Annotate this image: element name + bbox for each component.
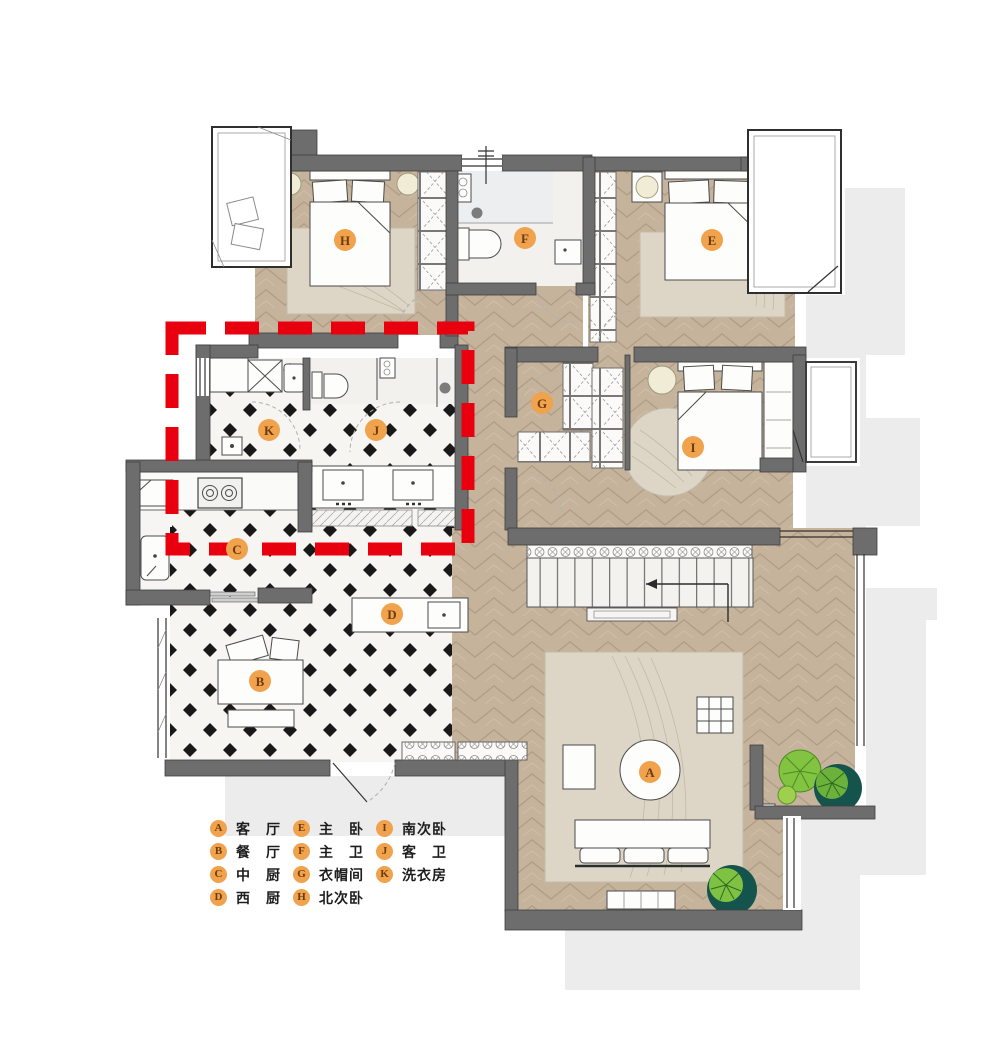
legend-badge: I [376, 820, 393, 837]
stairs-storage-strip [527, 545, 752, 558]
bed-i-pillow-1 [683, 365, 714, 391]
wall-segment [287, 155, 462, 171]
wall-segment [760, 458, 793, 472]
legend-item-h: H北次卧 [293, 886, 364, 909]
legend-badge: B [210, 843, 227, 860]
wall-segment [508, 528, 780, 545]
wall-segment [588, 157, 750, 171]
room-badge-a: A [639, 761, 661, 783]
svg-text:D: D [387, 607, 396, 622]
window-top [462, 155, 502, 171]
svg-text:J: J [373, 423, 380, 438]
legend-item-c: C中 厨 [210, 863, 281, 886]
wall-segment [126, 460, 312, 472]
floor-plan-drawing: A B C D E F G H I J K [0, 0, 1000, 1052]
svg-text:K: K [264, 423, 275, 438]
room-badge-e: E [701, 229, 723, 251]
legend-item-k: K洗衣房 [376, 863, 447, 886]
sink-c [141, 536, 169, 580]
wall-segment [625, 355, 630, 470]
stairs-landing [587, 608, 677, 621]
legend-badge: E [293, 820, 310, 837]
legend-label: 客 卫 [402, 842, 447, 862]
stove-c [198, 478, 242, 508]
wall-segment [750, 745, 763, 810]
legend-item-e: E主 卧 [293, 817, 364, 840]
legend-badge: G [293, 866, 310, 883]
balcony-east [748, 130, 841, 293]
vanity-apron-1 [312, 510, 412, 526]
island-sink-drain [442, 613, 446, 617]
room-badge-j: J [365, 419, 387, 441]
legend-column-1: A客 厅 B餐 厅 C中 厨 D西 厨 [210, 817, 281, 909]
legend-label: 西 厨 [236, 888, 281, 908]
sliding-door-c-1 [205, 592, 255, 596]
sofa-cushion-3 [668, 848, 708, 863]
legend-item-j: J客 卫 [376, 840, 447, 863]
bench-b [228, 710, 294, 727]
sink-f [555, 240, 581, 264]
wall-segment [755, 806, 875, 819]
chair-b-2 [270, 637, 299, 661]
sink-f-drain [563, 248, 566, 251]
wardrobe-g-2 [592, 368, 623, 468]
wall-segment [258, 588, 312, 603]
heater-k-dot [230, 444, 234, 448]
wardrobe-g-3 [518, 432, 590, 462]
room-badge-f: F [514, 227, 536, 249]
legend-label: 主 卧 [319, 819, 364, 839]
vanity-sink-1-drain [341, 481, 345, 485]
legend-label: 南次卧 [402, 819, 447, 839]
svg-text:C: C [232, 542, 241, 557]
legend-label: 北次卧 [319, 888, 364, 908]
wall-segment [634, 347, 806, 362]
wall-segment [505, 760, 518, 912]
sofa-cushion-2 [624, 848, 664, 863]
bed-i [678, 392, 762, 470]
sofa-back [575, 820, 710, 848]
legend-badge: A [210, 820, 227, 837]
wall-segment [576, 283, 595, 295]
room-badge-b: B [249, 670, 271, 692]
vanity-sink-1 [323, 470, 363, 500]
shoe-cabinet-2 [458, 742, 527, 760]
legend-label: 客 厅 [236, 819, 281, 839]
lamp-e-left [636, 176, 658, 198]
wall-segment [249, 333, 398, 348]
sink-c-drain [153, 554, 157, 558]
wardrobe-h [418, 172, 448, 290]
toilet-f-tank [457, 228, 469, 260]
legend-label: 主 卫 [319, 842, 364, 862]
game-table-a [697, 697, 733, 733]
wall-segment [395, 760, 510, 776]
room-badge-h: H [334, 229, 356, 251]
legend-label: 衣帽间 [319, 865, 364, 885]
legend-item-a: A客 厅 [210, 817, 281, 840]
wall-segment [505, 347, 598, 362]
stairs-treads [527, 558, 753, 607]
wall-segment [505, 348, 517, 417]
desk-i [764, 362, 793, 470]
vanity-sink-2-drain [411, 481, 415, 485]
wall-segment [165, 760, 330, 776]
wall-segment [505, 468, 517, 530]
lamp-h-right [397, 173, 419, 195]
window-dining-ticks [158, 630, 166, 732]
svg-text:H: H [340, 233, 350, 248]
legend-column-2: E主 卧 F主 卫 G衣帽间 H北次卧 [293, 817, 364, 909]
side-table-a [563, 745, 595, 789]
shower-head-f [472, 208, 483, 219]
svg-text:G: G [537, 396, 547, 411]
svg-text:I: I [690, 440, 695, 455]
wall-segment [446, 171, 458, 336]
wall-segment [298, 462, 312, 532]
legend-item-f: F主 卫 [293, 840, 364, 863]
legend-item-i: I南次卧 [376, 817, 447, 840]
toilet-j-tank [312, 372, 322, 398]
toilet-f [469, 230, 501, 258]
wall-segment [793, 355, 806, 472]
room-badge-d: D [381, 603, 403, 625]
floor-plan-image: A B C D E F G H I J K A客 厅 B餐 厅 C中 厨 D西 … [0, 0, 1000, 1052]
wall-segment [502, 155, 592, 171]
legend-badge: H [293, 889, 310, 906]
legend-column-3: I南次卧 J客 卫 K洗衣房 [376, 817, 447, 909]
legend-badge: J [376, 843, 393, 860]
legend-item-d: D西 厨 [210, 886, 281, 909]
room-badge-g: G [531, 392, 553, 414]
room-badge-i: I [682, 436, 704, 458]
bed-e-pillow-1 [668, 180, 709, 204]
floor-dining-b [170, 527, 452, 762]
shoe-cabinet-1 [402, 742, 455, 760]
svg-text:E: E [708, 233, 717, 248]
legend-label: 餐 厅 [236, 842, 281, 862]
wall-segment [303, 358, 310, 410]
shower-head-j [440, 383, 451, 394]
bed-h-headboard [310, 171, 390, 180]
svg-text:B: B [256, 674, 265, 689]
vanity-sink-2 [393, 470, 433, 500]
basin-k-drain [292, 376, 295, 379]
bay-window-living [783, 816, 801, 910]
bed-h-pillow-1 [312, 180, 347, 203]
room-badge-c: C [226, 538, 248, 560]
legend-item-b: B餐 厅 [210, 840, 281, 863]
counter-k [210, 358, 248, 392]
lamp-i [648, 366, 676, 394]
legend: A客 厅 B餐 厅 C中 厨 D西 厨 E主 卧 F主 卫 G衣帽间 H北次卧 … [210, 817, 447, 909]
toilet-j [324, 374, 348, 398]
legend-item-g: G衣帽间 [293, 863, 364, 886]
legend-badge: K [376, 866, 393, 883]
bed-i-pillow-2 [721, 365, 752, 391]
svg-text:F: F [521, 231, 529, 246]
svg-text:A: A [645, 765, 655, 780]
wardrobe-g-1 [563, 362, 593, 430]
legend-badge: C [210, 866, 227, 883]
legend-label: 洗衣房 [402, 865, 447, 885]
wall-segment [583, 157, 595, 295]
wall-segment [126, 462, 140, 605]
window-k [197, 358, 209, 396]
legend-badge: F [293, 843, 310, 860]
west-kitchen-d [352, 598, 468, 632]
room-badge-k: K [258, 419, 280, 441]
bay-window-i [806, 362, 856, 462]
sofa-cushion-1 [580, 848, 620, 863]
bed-h-pillow-2 [351, 180, 384, 203]
legend-label: 中 厨 [236, 865, 281, 885]
wall-segment [126, 590, 210, 605]
sliding-door-c-2 [212, 598, 262, 602]
plant-3 [778, 786, 796, 804]
legend-badge: D [210, 889, 227, 906]
wall-segment [446, 283, 536, 295]
wall-segment [505, 910, 802, 930]
wall-segment [853, 528, 877, 555]
